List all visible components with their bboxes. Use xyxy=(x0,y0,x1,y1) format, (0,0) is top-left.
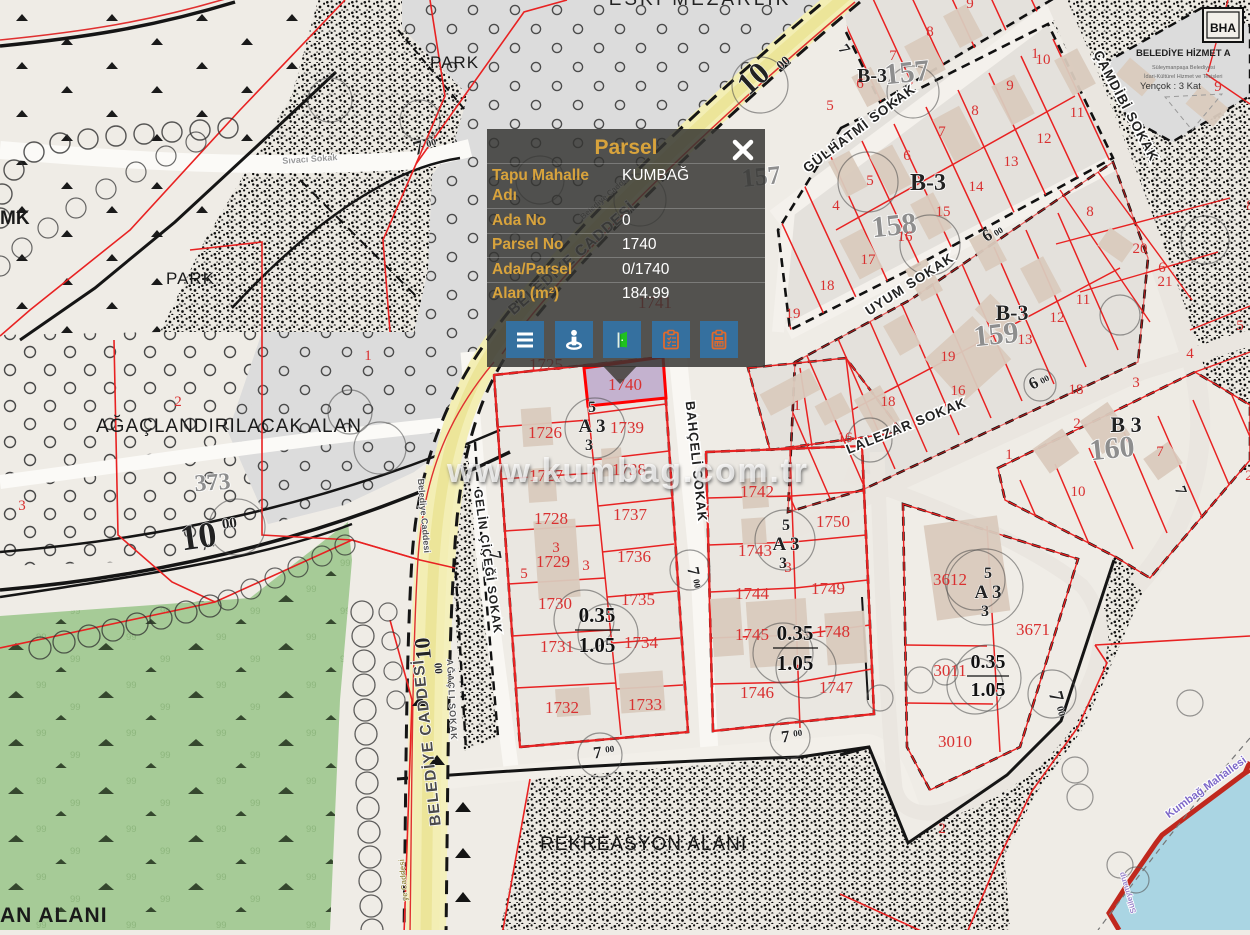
svg-text:1749: 1749 xyxy=(811,579,845,598)
svg-text:BELEDİYE HİZMET A: BELEDİYE HİZMET A xyxy=(1136,48,1231,59)
svg-text:1728: 1728 xyxy=(534,509,568,528)
svg-text:7: 7 xyxy=(938,124,946,140)
svg-text:AĞAÇLANDIRILACAK ALAN: AĞAÇLANDIRILACAK ALAN xyxy=(96,415,362,437)
svg-text:8: 8 xyxy=(926,24,934,40)
svg-text:3671: 3671 xyxy=(1016,620,1050,639)
svg-text:10: 10 xyxy=(178,514,219,559)
svg-text:4: 4 xyxy=(832,198,840,214)
svg-text:5: 5 xyxy=(520,566,528,582)
svg-text:1737: 1737 xyxy=(613,505,648,524)
svg-text:2: 2 xyxy=(1073,416,1081,432)
svg-text:1745: 1745 xyxy=(735,625,769,644)
svg-text:7: 7 xyxy=(889,48,897,64)
svg-text:1733: 1733 xyxy=(628,695,662,714)
svg-text:B-3: B-3 xyxy=(910,170,946,196)
svg-text:00: 00 xyxy=(221,515,238,533)
svg-text:9: 9 xyxy=(1006,78,1014,94)
svg-text:5: 5 xyxy=(984,565,992,582)
svg-text:18: 18 xyxy=(1069,382,1084,398)
svg-text:20: 20 xyxy=(1133,241,1148,257)
svg-text:PARK: PARK xyxy=(430,53,479,72)
svg-text:5: 5 xyxy=(782,517,790,534)
svg-text:19: 19 xyxy=(941,349,956,365)
svg-text:3: 3 xyxy=(981,603,989,620)
svg-text:5: 5 xyxy=(588,399,596,416)
svg-text:MK: MK xyxy=(0,208,30,229)
svg-text:0.35: 0.35 xyxy=(971,651,1006,673)
svg-text:00: 00 xyxy=(605,744,615,755)
svg-text:1747: 1747 xyxy=(819,678,854,697)
svg-text:6: 6 xyxy=(856,76,864,92)
svg-text:1726: 1726 xyxy=(528,423,562,442)
svg-text:7: 7 xyxy=(1156,444,1164,460)
svg-text:13: 13 xyxy=(1004,154,1019,170)
svg-text:REKREASYON ALANI: REKREASYON ALANI xyxy=(540,834,747,855)
svg-text:12: 12 xyxy=(1050,310,1065,326)
svg-text:3010: 3010 xyxy=(938,732,972,751)
svg-text:8: 8 xyxy=(1246,198,1250,214)
svg-text:Süleymanpaşa Belediyesi: Süleymanpaşa Belediyesi xyxy=(1152,65,1215,71)
svg-text:5: 5 xyxy=(866,173,874,189)
svg-text:9: 9 xyxy=(1214,79,1222,95)
svg-text:12: 12 xyxy=(1037,131,1052,147)
svg-text:2: 2 xyxy=(174,394,182,410)
svg-text:3: 3 xyxy=(1132,375,1140,391)
svg-text:19: 19 xyxy=(786,306,801,322)
svg-text:21: 21 xyxy=(1158,274,1173,290)
svg-text:16: 16 xyxy=(898,229,914,245)
svg-text:AN ALANI: AN ALANI xyxy=(0,904,108,927)
svg-text:1: 1 xyxy=(364,348,372,364)
svg-text:3: 3 xyxy=(18,498,26,514)
svg-text:1.05: 1.05 xyxy=(777,651,814,675)
svg-text:1: 1 xyxy=(1005,447,1013,463)
svg-text:8: 8 xyxy=(1086,204,1094,220)
svg-text:18: 18 xyxy=(820,278,835,294)
svg-text:16: 16 xyxy=(951,383,967,399)
svg-text:5: 5 xyxy=(826,98,834,114)
svg-text:1748: 1748 xyxy=(816,622,850,641)
svg-text:373: 373 xyxy=(194,469,232,497)
svg-text:17: 17 xyxy=(861,252,877,268)
svg-text:11: 11 xyxy=(1070,105,1084,121)
svg-text:1731: 1731 xyxy=(540,637,574,656)
svg-text:9: 9 xyxy=(966,0,974,12)
svg-text:00: 00 xyxy=(793,728,803,739)
svg-text:1: 1 xyxy=(1031,46,1039,62)
svg-text:A 3: A 3 xyxy=(579,416,606,437)
svg-text:2: 2 xyxy=(938,821,946,837)
svg-text:3: 3 xyxy=(784,560,792,576)
svg-text:1735: 1735 xyxy=(621,590,655,609)
svg-text:B 3: B 3 xyxy=(1110,412,1141,437)
svg-text:0.35: 0.35 xyxy=(579,603,616,627)
svg-text:4: 4 xyxy=(1186,346,1194,362)
svg-text:5: 5 xyxy=(1236,318,1244,334)
svg-text:1: 1 xyxy=(796,0,804,4)
svg-text:00: 00 xyxy=(433,662,446,675)
svg-text:13: 13 xyxy=(1018,332,1033,348)
svg-text:1: 1 xyxy=(793,398,801,414)
svg-text:18: 18 xyxy=(881,394,896,410)
svg-text:6: 6 xyxy=(903,148,911,164)
svg-text:10: 10 xyxy=(409,637,436,661)
svg-text:1.05: 1.05 xyxy=(971,679,1006,701)
svg-text:BHA: BHA xyxy=(1210,21,1236,35)
svg-text:A 3: A 3 xyxy=(773,534,800,555)
svg-text:A 3: A 3 xyxy=(975,582,1002,603)
svg-text:14: 14 xyxy=(969,179,985,195)
svg-text:0.35: 0.35 xyxy=(777,621,814,645)
svg-text:İdari-Kültürel Hizmet ve Tesis: İdari-Kültürel Hizmet ve Tesisleri xyxy=(1144,73,1222,80)
svg-text:3011: 3011 xyxy=(933,661,966,680)
svg-text:15: 15 xyxy=(936,204,951,220)
svg-text:3: 3 xyxy=(582,558,590,574)
svg-text:1730: 1730 xyxy=(538,594,572,613)
svg-text:1744: 1744 xyxy=(735,584,770,603)
svg-text:1739: 1739 xyxy=(610,418,644,437)
svg-text:1732: 1732 xyxy=(545,698,579,717)
svg-text:1750: 1750 xyxy=(816,512,850,531)
svg-text:11: 11 xyxy=(1076,292,1090,308)
svg-text:ESKİ MEZARLIK: ESKİ MEZARLIK xyxy=(609,0,792,10)
svg-text:PARK: PARK xyxy=(166,269,215,288)
svg-text:10: 10 xyxy=(1071,484,1086,500)
svg-text:B-3: B-3 xyxy=(996,300,1029,325)
svg-text:3: 3 xyxy=(552,540,560,556)
svg-text:1734: 1734 xyxy=(624,633,659,652)
svg-text:1.05: 1.05 xyxy=(579,633,616,657)
svg-text:3612: 3612 xyxy=(933,570,967,589)
svg-text:16: 16 xyxy=(838,430,854,446)
svg-text:1736: 1736 xyxy=(617,547,651,566)
svg-text:1746: 1746 xyxy=(740,683,774,702)
svg-text:Yençok : 3 Kat: Yençok : 3 Kat xyxy=(1140,81,1201,92)
svg-text:8: 8 xyxy=(971,103,979,119)
svg-text:1743: 1743 xyxy=(738,541,772,560)
svg-text:2: 2 xyxy=(1245,468,1250,484)
